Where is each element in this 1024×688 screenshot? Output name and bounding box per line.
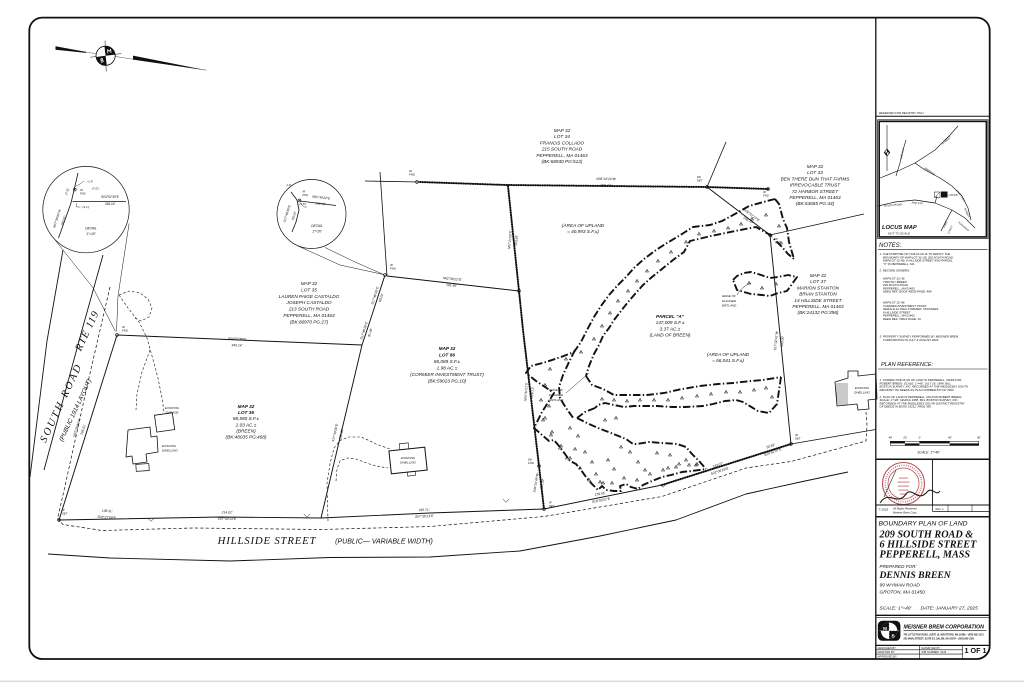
svg-text:N04°32′23″W: N04°32′23″W	[596, 177, 617, 181]
svg-text:LAUREN PAIGE CASTALDO: LAUREN PAIGE CASTALDO	[279, 294, 340, 299]
svg-text:MAP 32: MAP 32	[554, 128, 571, 133]
svg-text:DETAIL: DETAIL	[85, 227, 97, 231]
svg-text:PLAN REFERENCE:: PLAN REFERENCE:	[881, 362, 934, 368]
svg-text:PEPPERELL, MASS: PEPPERELL, MASS	[880, 549, 971, 560]
svg-text:DESIGNED BY:: DESIGNED BY:	[878, 646, 897, 650]
svg-text:LOT 34: LOT 34	[554, 134, 570, 139]
svg-text:FND: FND	[390, 267, 396, 271]
svg-text:IR: IR	[80, 188, 83, 192]
svg-text:LOT 36: LOT 36	[238, 410, 254, 415]
svg-text:FND: FND	[528, 461, 534, 465]
svg-text:LOT 86: LOT 86	[439, 353, 455, 358]
svg-text:JOSEPH CASTALDO: JOSEPH CASTALDO	[286, 300, 332, 305]
svg-text:DEED REF: BOOK 48035 PAGE: 468: DEED REF: BOOK 48035 PAGE: 468	[883, 290, 932, 294]
svg-text:(BK:80970 PG:27): (BK:80970 PG:27)	[290, 319, 329, 324]
svg-text:(BK:63685 PG:44): (BK:63685 PG:44)	[796, 201, 835, 206]
svg-text:147,009 S.F.±: 147,009 S.F.±	[656, 320, 685, 325]
svg-text:DWELLING: DWELLING	[400, 461, 416, 465]
svg-text:213 SOUTH ROAD: 213 SOUTH ROAD	[288, 307, 330, 312]
svg-text:349.14′: 349.14′	[231, 343, 242, 347]
svg-text:1″=20′: 1″=20′	[312, 229, 322, 233]
svg-text:20: 20	[902, 436, 907, 440]
svg-text:(7.0′): (7.0′)	[92, 187, 99, 191]
svg-text:LOCUS MAP: LOCUS MAP	[882, 225, 917, 231]
svg-text:SET: SET	[697, 179, 703, 183]
svg-text:FLAGGED: FLAGGED	[549, 393, 564, 397]
svg-text:REGISTRY OF DEEDS AS PLAN NUMB: REGISTRY OF DEEDS AS PLAN NUMBER 847 OF …	[880, 388, 955, 392]
svg-text:PARCEL "A": PARCEL "A"	[656, 314, 685, 319]
svg-text:(4.1′): (4.1′)	[83, 205, 90, 209]
svg-text:= 40,993 S.F.±): = 40,993 S.F.±)	[567, 229, 599, 234]
svg-text:BOUNDARY PLAN OF LAND: BOUNDARY PLAN OF LAND	[879, 521, 968, 528]
svg-text:SET: SET	[62, 512, 68, 516]
svg-text:MAP 32: MAP 32	[301, 281, 318, 286]
svg-text:Rev. 1: Rev. 1	[936, 507, 945, 511]
svg-text:IRREVOCABLE TRUST: IRREVOCABLE TRUST	[790, 183, 841, 188]
svg-text:LOT 37: LOT 37	[810, 279, 826, 284]
svg-text:GARAGE: GARAGE	[166, 411, 180, 415]
svg-text:86,089 S.F.±: 86,089 S.F.±	[434, 359, 461, 364]
svg-text:215 SOUTH ROAD: 215 SOUTH ROAD	[541, 147, 583, 152]
svg-text:1.0′: 1.0′	[286, 183, 291, 187]
svg-text:DWELLING: DWELLING	[854, 391, 870, 395]
svg-text:S04°52′39″E: S04°52′39″E	[228, 337, 247, 342]
svg-text:EXISTING: EXISTING	[401, 456, 416, 460]
svg-text:FND: FND	[775, 241, 781, 245]
svg-text:1 OF 1: 1 OF 1	[965, 646, 987, 655]
svg-text:S07°30′13″E: S07°30′13″E	[218, 517, 237, 521]
svg-text:OF DEEDS IN BOOK 19212, PAGE 3: OF DEEDS IN BOOK 19212, PAGE 385.	[880, 405, 932, 409]
svg-text:NOT TO SCALE: NOT TO SCALE	[888, 232, 911, 236]
svg-text:3.37 AC.±: 3.37 AC.±	[660, 326, 681, 331]
svg-text:1″=20′: 1″=20′	[86, 232, 96, 236]
svg-text:40: 40	[889, 436, 893, 440]
svg-text:All Rights Reserved: All Rights Reserved	[892, 506, 917, 510]
svg-text:282.24′: 282.24′	[600, 183, 612, 187]
svg-text:HILLSIDE STREET: HILLSIDE STREET	[217, 535, 317, 547]
svg-text:GROTON, MA 01450: GROTON, MA 01450	[880, 590, 926, 596]
svg-text:NOTES:: NOTES:	[879, 243, 902, 249]
svg-text:SET: SET	[549, 504, 555, 508]
svg-text:DENNIS BREEN: DENNIS BREEN	[879, 570, 952, 581]
svg-text:FND: FND	[763, 194, 769, 198]
svg-text:PEPPERELL, MA 01463: PEPPERELL, MA 01463	[792, 304, 844, 309]
svg-text:MAP 32: MAP 32	[238, 404, 255, 409]
svg-text:(BK:68930 PG:512): (BK:68930 PG:512)	[542, 159, 583, 164]
svg-text:(AREA OF UPLAND: (AREA OF UPLAND	[562, 223, 605, 228]
svg-text:PEPPERELL, MA 01463: PEPPERELL, MA 01463	[789, 195, 841, 200]
svg-text:© 2025: © 2025	[879, 508, 889, 512]
svg-text:(CORMIER INVESTMENT TRUST): (CORMIER INVESTMENT TRUST)	[410, 372, 484, 377]
svg-text:LOT 35: LOT 35	[301, 287, 317, 292]
svg-text:(BREEN): (BREEN)	[236, 428, 256, 433]
svg-text:FRANCIS COLLADO: FRANCIS COLLADO	[540, 140, 585, 145]
svg-text:PEPPERELL, MA 01463: PEPPERELL, MA 01463	[283, 313, 335, 318]
svg-text:80: 80	[977, 436, 981, 440]
svg-text:MARION STANTON: MARION STANTON	[797, 285, 840, 290]
svg-text:–1.9′: –1.9′	[86, 180, 94, 184]
svg-text:RTE 119: RTE 119	[912, 201, 923, 205]
svg-text:88,580 S.F.±: 88,580 S.F.±	[233, 416, 260, 421]
svg-text:MAP 32: MAP 32	[807, 164, 824, 169]
svg-text:BEN THERE DUN THAT FARMS: BEN THERE DUN THAT FARMS	[781, 176, 851, 181]
svg-text:2. RECORD OWNERS:: 2. RECORD OWNERS:	[879, 269, 911, 273]
svg-text:CORPORATION IN JULY & AUGUST 2: CORPORATION IN JULY & AUGUST 2023.	[883, 338, 939, 342]
svg-text:LOCUS: LOCUS	[949, 193, 958, 197]
svg-text:(BK:48035 PG:468): (BK:48035 PG:468)	[226, 435, 267, 440]
svg-text:RESERVED FOR REGISTRY ONLY: RESERVED FOR REGISTRY ONLY	[879, 111, 925, 115]
svg-text:S04°52′39″E: S04°52′39″E	[101, 195, 120, 199]
svg-text:DRAFTED BY:: DRAFTED BY:	[878, 650, 896, 654]
svg-text:(BK:59023 PG:10): (BK:59023 PG:10)	[428, 379, 467, 384]
svg-text:IR: IR	[303, 190, 306, 194]
svg-text:DATE: JANUARY 27, 2025: DATE: JANUARY 27, 2025	[921, 606, 979, 612]
svg-text:M: M	[883, 626, 887, 631]
svg-text:FND: FND	[122, 329, 128, 333]
svg-text:EDGE OF: EDGE OF	[722, 294, 736, 298]
svg-text:(LAND OF BREEN): (LAND OF BREEN)	[650, 333, 691, 338]
svg-text:FLAGGED: FLAGGED	[722, 299, 737, 303]
svg-text:72 HARBOR STREET: 72 HARBOR STREET	[792, 189, 840, 194]
svg-text:S07°30′13″E: S07°30′13″E	[415, 514, 434, 519]
svg-text:(BK:24132 PG:398): (BK:24132 PG:398)	[798, 310, 839, 315]
svg-text:FND: FND	[80, 191, 86, 195]
svg-text:SCALE: 1″=40′: SCALE: 1″=40′	[880, 606, 913, 612]
svg-text:SET: SET	[795, 437, 801, 441]
svg-text:DETAIL: DETAIL	[311, 224, 323, 228]
svg-text:= 66,041 S.F.±): = 66,041 S.F.±)	[712, 358, 744, 363]
svg-text:1.98 AC.±: 1.98 AC.±	[437, 366, 458, 371]
svg-text:FND: FND	[303, 193, 309, 197]
svg-text:2.03 AC.±: 2.03 AC.±	[235, 422, 257, 427]
svg-text:EDGE OF: EDGE OF	[549, 388, 563, 392]
svg-text:(AREA OF UPLAND: (AREA OF UPLAND	[707, 352, 750, 357]
svg-text:EXISTING: EXISTING	[855, 386, 870, 390]
svg-text:335.71′: 335.71′	[419, 508, 430, 512]
svg-text:14 HILLSIDE STREET: 14 HILLSIDE STREET	[794, 298, 842, 303]
svg-text:DEED REF: 59023 PAGE: 10: DEED REF: 59023 PAGE: 10	[883, 317, 921, 321]
svg-text:MEISNER BREM CORPORATION: MEISNER BREM CORPORATION	[904, 625, 985, 631]
svg-text:SCALE: 1″=40′: SCALE: 1″=40′	[917, 451, 940, 455]
svg-text:262 MAIN STREET, SUITE E3, SAL: 262 MAIN STREET, SUITE E3, SALEM, NH 030…	[903, 639, 975, 641]
svg-text:WETLAND: WETLAND	[722, 304, 738, 308]
svg-text:JOB NUMBER: 3143: JOB NUMBER: 3143	[921, 650, 947, 654]
svg-text:349.14′: 349.14′	[105, 202, 116, 206]
svg-text:DWELLING: DWELLING	[162, 449, 178, 453]
svg-text:SURVEYED BY:: SURVEYED BY:	[921, 646, 941, 650]
svg-text:BRIAN STANTON: BRIAN STANTON	[799, 292, 837, 297]
svg-text:Meisner Brem Corp.: Meisner Brem Corp.	[893, 510, 917, 514]
svg-text:EXISTING: EXISTING	[165, 406, 180, 410]
svg-text:99 WYMAN ROAD: 99 WYMAN ROAD	[880, 583, 921, 589]
svg-text:(PUBLIC— VARIABLE WIDTH): (PUBLIC— VARIABLE WIDTH)	[335, 538, 433, 545]
svg-text:40: 40	[948, 436, 952, 440]
svg-text:216.13′: 216.13′	[530, 387, 535, 399]
svg-text:WETLAND: WETLAND	[549, 398, 565, 402]
svg-text:214.02′: 214.02′	[221, 510, 233, 514]
svg-text:LOT 33: LOT 33	[807, 170, 823, 175]
svg-text:PREPARED FOR:: PREPARED FOR:	[880, 564, 918, 569]
svg-text:745 LITTLETON ROAD, SUITE 16,: 745 LITTLETON ROAD, SUITE 16, WESTFORD, …	[904, 633, 985, 636]
svg-text:MAP 32: MAP 32	[810, 273, 827, 278]
svg-text:APPROVED BY:: APPROVED BY:	[877, 655, 898, 659]
svg-text:"X" IN PEPPERELL, MA.: "X" IN PEPPERELL, MA.	[883, 262, 915, 266]
svg-text:FND: FND	[409, 173, 415, 177]
svg-text:MAP 32: MAP 32	[439, 346, 456, 351]
svg-text:EXISTING: EXISTING	[162, 444, 177, 448]
svg-text:138.11′: 138.11′	[102, 509, 113, 514]
svg-text:PEPPERELL, MA 01463: PEPPERELL, MA 01463	[536, 153, 588, 158]
